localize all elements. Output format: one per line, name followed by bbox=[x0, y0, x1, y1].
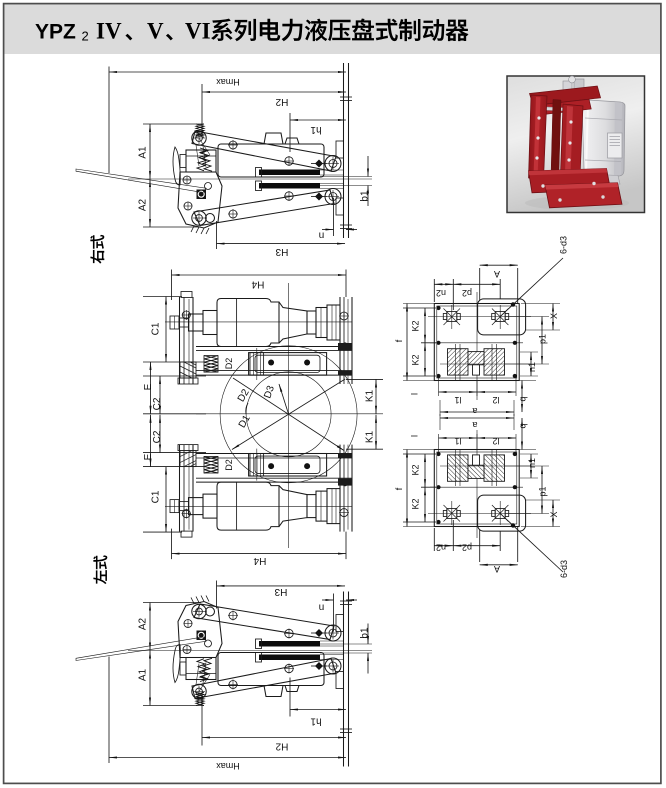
svg-text:A: A bbox=[494, 269, 500, 279]
svg-text:h1: h1 bbox=[310, 716, 322, 727]
svg-text:K2: K2 bbox=[411, 354, 421, 365]
svg-text:a: a bbox=[472, 420, 477, 430]
svg-text:C2: C2 bbox=[152, 397, 163, 410]
svg-text:V: V bbox=[147, 19, 164, 44]
svg-text:6-d3: 6-d3 bbox=[559, 560, 569, 578]
svg-text:K1: K1 bbox=[365, 389, 376, 402]
svg-text:K2: K2 bbox=[411, 498, 421, 509]
svg-text:p1: p1 bbox=[538, 334, 548, 344]
svg-text:l2: l2 bbox=[492, 436, 499, 446]
svg-text:A: A bbox=[494, 564, 500, 574]
svg-text:b1: b1 bbox=[359, 190, 370, 202]
svg-text:l1: l1 bbox=[454, 436, 461, 446]
svg-text:H4: H4 bbox=[253, 555, 266, 566]
svg-text:p2: p2 bbox=[462, 543, 472, 553]
svg-text:b1: b1 bbox=[359, 627, 370, 639]
svg-text:YPZ: YPZ bbox=[35, 21, 76, 44]
svg-text:C1: C1 bbox=[150, 322, 161, 335]
svg-text:H2: H2 bbox=[275, 96, 288, 107]
svg-text:Hmax: Hmax bbox=[216, 761, 240, 771]
svg-text:n2: n2 bbox=[436, 288, 446, 298]
svg-text:n: n bbox=[319, 602, 325, 613]
svg-text:X: X bbox=[549, 511, 559, 517]
svg-text:A1: A1 bbox=[137, 668, 148, 681]
svg-text:n1: n1 bbox=[527, 362, 537, 372]
svg-text:a: a bbox=[472, 406, 477, 416]
svg-text:IV: IV bbox=[96, 19, 122, 44]
svg-text:l: l bbox=[410, 435, 420, 437]
svg-text:H3: H3 bbox=[275, 246, 288, 257]
svg-text:A2: A2 bbox=[137, 617, 148, 630]
svg-text:E: E bbox=[143, 383, 154, 390]
svg-text:VI: VI bbox=[185, 19, 211, 44]
svg-text:n: n bbox=[319, 230, 325, 241]
svg-text:2: 2 bbox=[82, 29, 89, 44]
svg-text:E: E bbox=[143, 453, 154, 460]
svg-text:h1: h1 bbox=[310, 124, 322, 135]
svg-text:X: X bbox=[549, 313, 559, 319]
svg-text:D2: D2 bbox=[224, 459, 234, 471]
svg-text:l2: l2 bbox=[492, 395, 499, 405]
svg-text:p2: p2 bbox=[462, 288, 472, 298]
svg-text:K2: K2 bbox=[411, 320, 421, 331]
svg-text:q: q bbox=[518, 396, 528, 401]
svg-text:A2: A2 bbox=[137, 198, 148, 211]
svg-text:l: l bbox=[410, 393, 420, 395]
svg-text:l1: l1 bbox=[454, 395, 461, 405]
svg-text:C2: C2 bbox=[152, 430, 163, 443]
svg-text:K1: K1 bbox=[365, 430, 376, 443]
svg-text:H2: H2 bbox=[275, 741, 288, 752]
svg-text:q: q bbox=[518, 423, 528, 428]
svg-text:C1: C1 bbox=[150, 490, 161, 503]
svg-text:H4: H4 bbox=[251, 279, 264, 290]
svg-text:H3: H3 bbox=[274, 586, 287, 597]
svg-text:n2: n2 bbox=[436, 543, 446, 553]
svg-text:A1: A1 bbox=[137, 146, 148, 159]
svg-text:Hmax: Hmax bbox=[216, 77, 240, 87]
svg-text:p1: p1 bbox=[538, 486, 548, 496]
svg-text:K2: K2 bbox=[411, 464, 421, 475]
svg-text:D2: D2 bbox=[224, 358, 234, 370]
svg-text:n1: n1 bbox=[527, 458, 537, 468]
svg-text:6-d3: 6-d3 bbox=[559, 236, 569, 254]
